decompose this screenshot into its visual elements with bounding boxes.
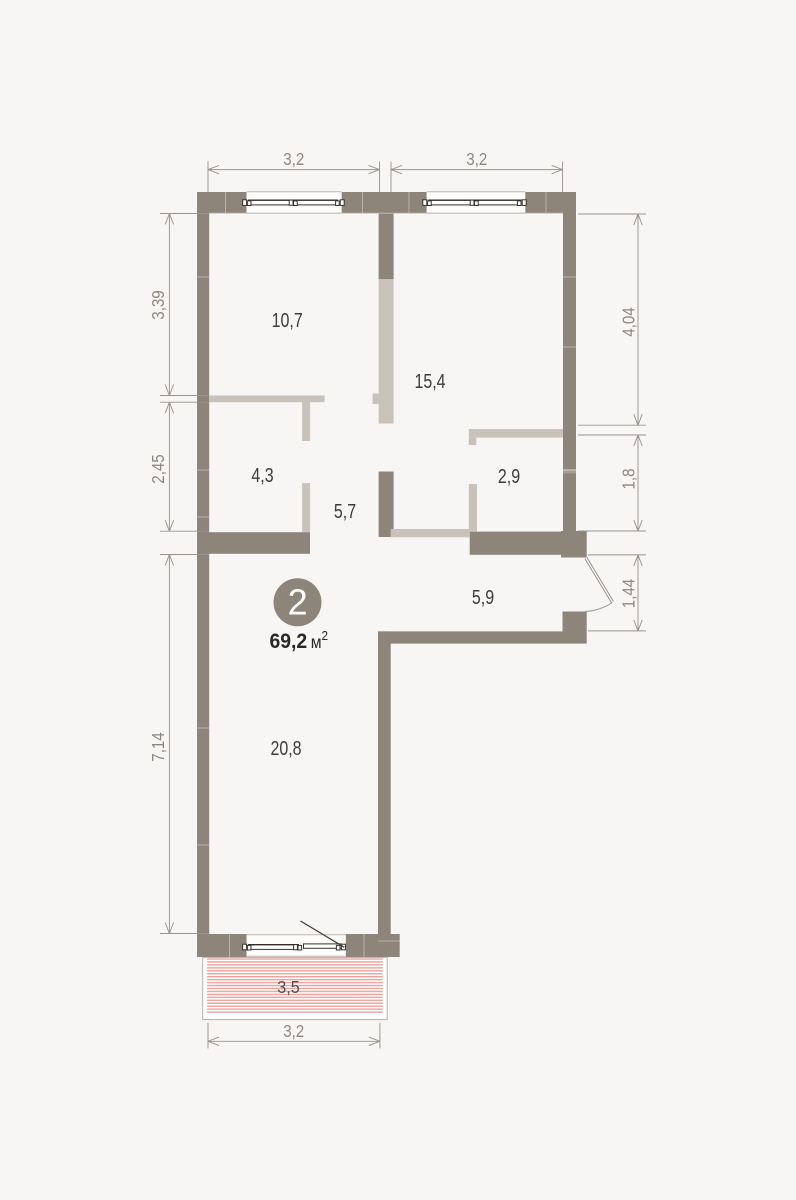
svg-text:4,3: 4,3 [251, 463, 273, 486]
svg-text:10,7: 10,7 [272, 308, 303, 331]
svg-text:1,8: 1,8 [619, 468, 638, 489]
svg-text:15,4: 15,4 [414, 369, 445, 392]
svg-text:3,5: 3,5 [277, 977, 300, 997]
svg-text:3,2: 3,2 [283, 1022, 304, 1041]
svg-text:3,2: 3,2 [466, 150, 487, 169]
svg-text:5,7: 5,7 [334, 499, 356, 522]
svg-text:7,14: 7,14 [149, 732, 168, 761]
svg-text:20,8: 20,8 [270, 736, 301, 759]
svg-text:5,9: 5,9 [472, 585, 494, 608]
svg-text:2: 2 [288, 582, 308, 623]
svg-text:3,2: 3,2 [283, 150, 304, 169]
svg-text:2,9: 2,9 [498, 464, 520, 487]
svg-text:1,44: 1,44 [619, 579, 638, 608]
svg-text:3,39: 3,39 [149, 290, 168, 319]
svg-text:69,2м2: 69,2м2 [270, 628, 329, 653]
svg-text:4,04: 4,04 [619, 307, 638, 336]
svg-text:2,45: 2,45 [149, 454, 168, 483]
